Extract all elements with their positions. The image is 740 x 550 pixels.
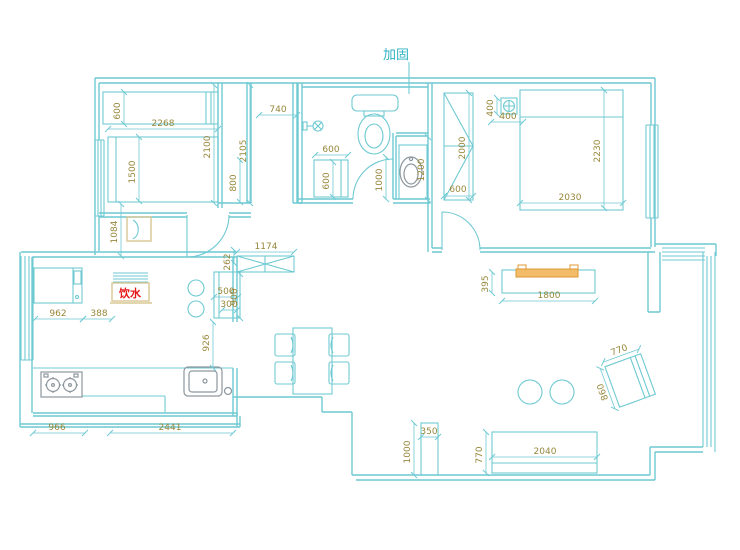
toilet-icon bbox=[352, 95, 398, 154]
armchair: 770 860 bbox=[586, 340, 656, 413]
window-bedroom2-east bbox=[646, 125, 658, 218]
bedroom1-bed bbox=[108, 137, 218, 202]
tv bbox=[516, 265, 578, 277]
dimension-label: 800 bbox=[229, 174, 239, 191]
dimension-label: 2441 bbox=[159, 423, 182, 433]
dimension-label: 900 bbox=[230, 288, 240, 305]
dining-table bbox=[293, 328, 332, 394]
dimension-label: 600 bbox=[449, 185, 466, 195]
dimension-label: 1000 bbox=[375, 168, 385, 191]
dimension-label: 966 bbox=[48, 423, 65, 433]
dimension-label: 770 bbox=[475, 446, 485, 463]
dimension-label: 262 bbox=[223, 253, 233, 270]
dimension-label: 2230 bbox=[593, 139, 603, 162]
dimension-label: 1200 bbox=[417, 158, 427, 181]
dimension-label: 600 bbox=[322, 172, 332, 189]
dimension-label: 1500 bbox=[128, 160, 138, 183]
water-point-label: 饮水 bbox=[118, 286, 142, 300]
dining-chair bbox=[275, 334, 295, 356]
reinforce-note: 加固 bbox=[383, 48, 409, 63]
door-arc-bedroom1 bbox=[187, 215, 229, 257]
stool bbox=[550, 380, 574, 404]
door-arc-bedroom2 bbox=[442, 212, 480, 250]
dimension-label: 2030 bbox=[559, 193, 582, 203]
dimension-label: 2100 bbox=[203, 135, 213, 158]
dimension-label: 388 bbox=[90, 309, 107, 319]
kitchen-sink bbox=[184, 367, 232, 396]
dimension-label: 400 bbox=[486, 99, 496, 116]
dimension-label: 1800 bbox=[538, 291, 561, 301]
window-kitchen-west bbox=[21, 256, 33, 360]
side-table bbox=[127, 217, 151, 241]
door-arc-bathroom bbox=[353, 159, 393, 199]
dimension-label: 2105 bbox=[239, 140, 249, 163]
dimension-label: 600 bbox=[113, 102, 123, 119]
entry-shoe-cabinet bbox=[237, 256, 294, 272]
window-living-east bbox=[703, 252, 715, 452]
floor-plan-drawing: 770 860 600 2268 1500 2100 2105 800 740 … bbox=[0, 0, 740, 550]
dimension-label: 2000 bbox=[458, 136, 468, 159]
stool bbox=[518, 380, 542, 404]
dimension-label: 395 bbox=[481, 275, 491, 292]
shower-head-icon bbox=[303, 121, 323, 131]
dimension-label: 1000 bbox=[403, 440, 413, 463]
window-living-north bbox=[662, 248, 705, 260]
dining-chair bbox=[275, 362, 295, 384]
stove-icon bbox=[41, 372, 82, 397]
annotations: 加固 饮水 bbox=[118, 48, 409, 300]
kitchen-counter bbox=[33, 368, 233, 412]
bedroom2-bed bbox=[520, 90, 623, 210]
dimension-label: 1174 bbox=[255, 242, 278, 252]
floor-plan: 770 860 600 2268 1500 2100 2105 800 740 … bbox=[0, 0, 740, 550]
dimension-label: 926 bbox=[202, 334, 212, 351]
dimension-label: 350 bbox=[420, 427, 437, 437]
dimension-label: 2040 bbox=[534, 447, 557, 457]
dimension-label: 400 bbox=[499, 112, 516, 122]
window-bedroom1-west bbox=[95, 140, 104, 216]
dimension-label: 1084 bbox=[110, 220, 120, 243]
doors bbox=[187, 159, 480, 257]
dimension-label: 2268 bbox=[152, 119, 175, 129]
dimension-label: 740 bbox=[269, 105, 286, 115]
dimension-label: 962 bbox=[49, 309, 66, 319]
kitchen-fridge bbox=[34, 268, 82, 303]
dimension-label: 600 bbox=[322, 145, 339, 155]
kitchen-stools bbox=[188, 280, 204, 317]
